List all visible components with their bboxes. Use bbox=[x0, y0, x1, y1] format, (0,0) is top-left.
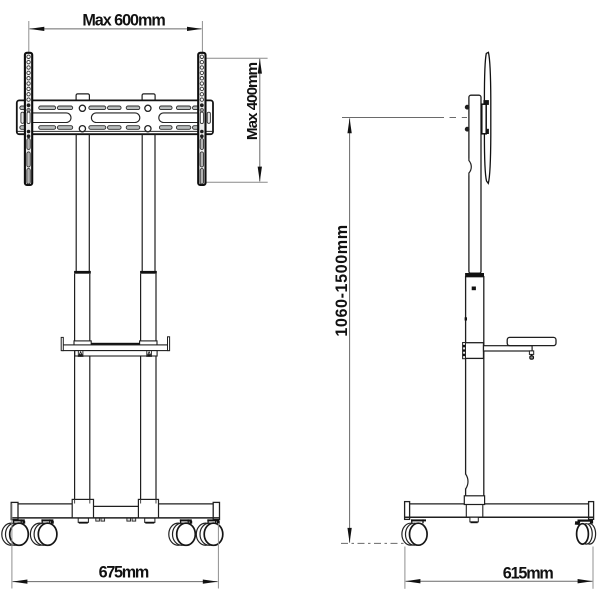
svg-text:Max 400mm: Max 400mm bbox=[244, 62, 261, 140]
svg-text:Max 600mm: Max 600mm bbox=[82, 12, 165, 30]
svg-text:675mm: 675mm bbox=[99, 564, 149, 582]
svg-text:615mm: 615mm bbox=[503, 564, 554, 582]
svg-text:1060-1500mm: 1060-1500mm bbox=[333, 224, 351, 336]
